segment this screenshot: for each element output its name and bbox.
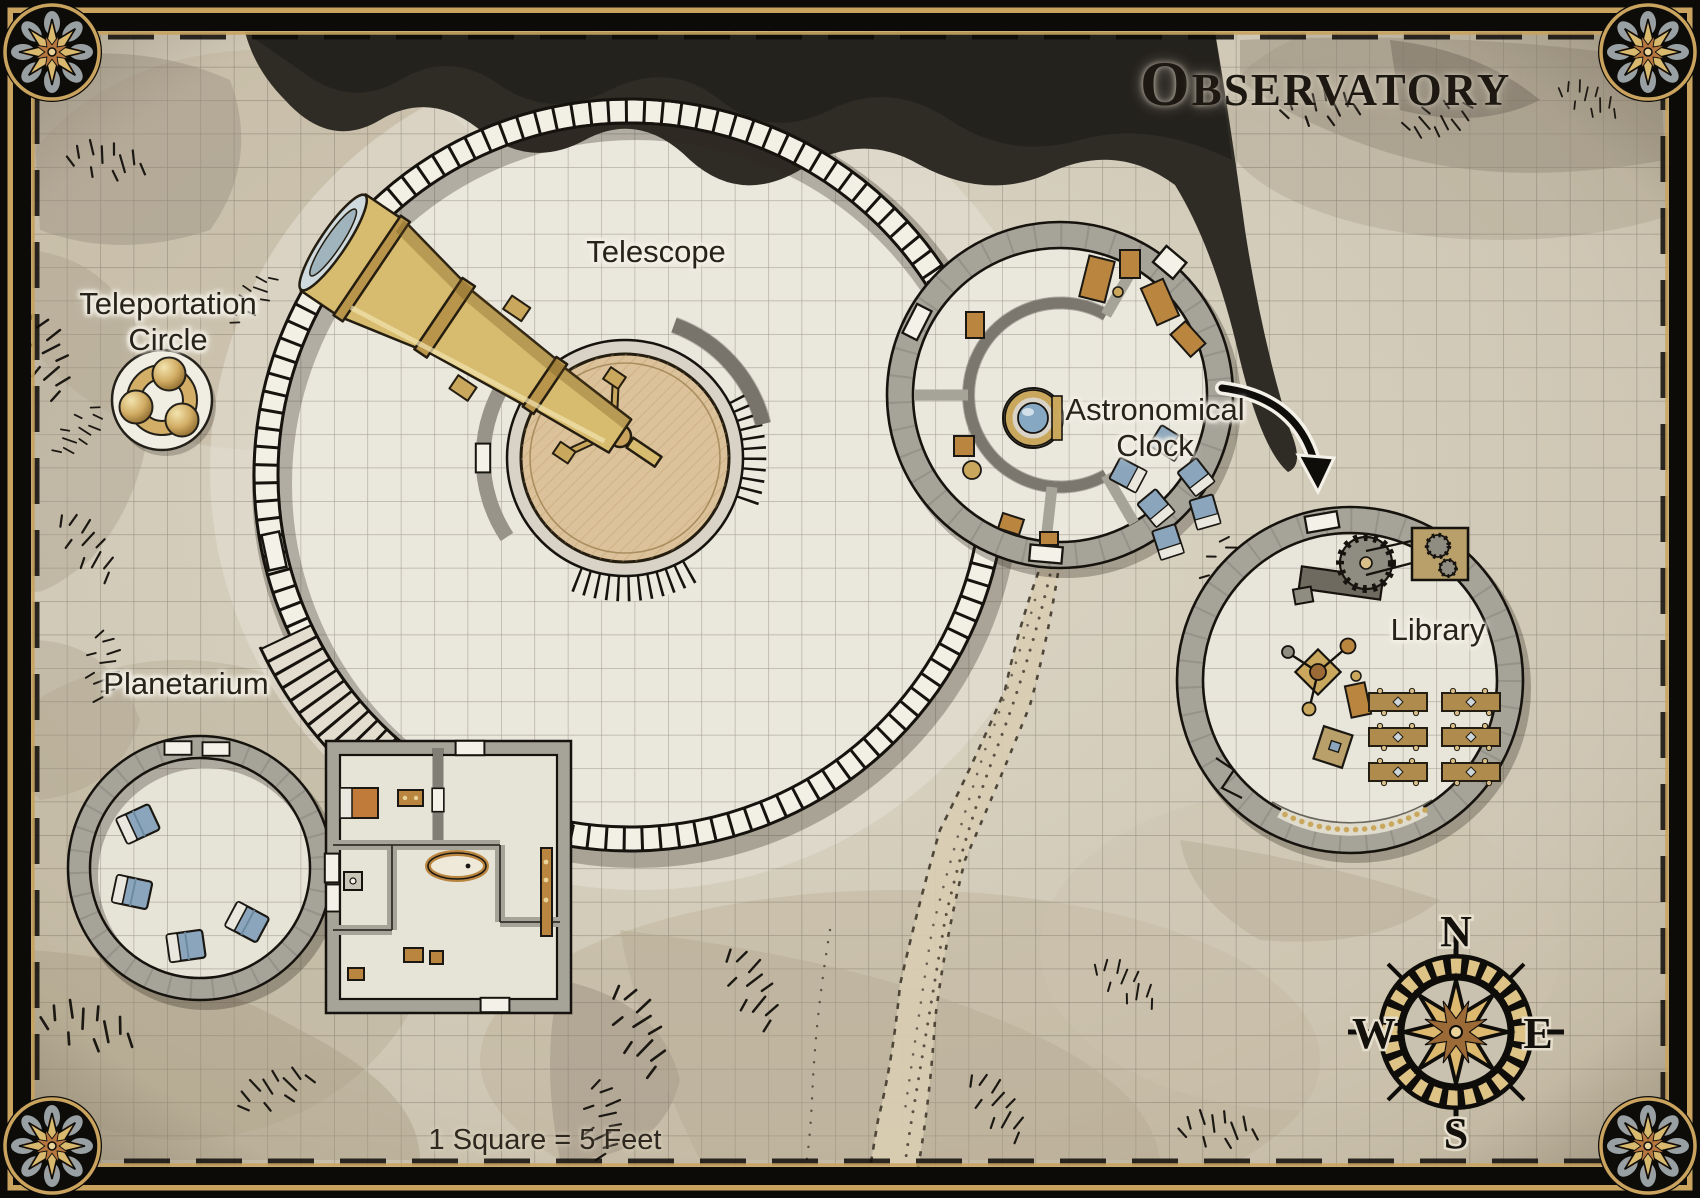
observatory-battle-map: N S W E Observatory Telescope Teleportat… <box>0 0 1700 1198</box>
corner-ornament-bottom-left <box>2 1096 102 1196</box>
edge-vignette <box>0 0 1700 1198</box>
corner-ornament-top-left <box>2 2 102 102</box>
map-canvas: N S W E <box>0 0 1700 1198</box>
corner-ornament-bottom-right <box>1598 1096 1698 1196</box>
corner-ornament-top-right <box>1598 2 1698 102</box>
